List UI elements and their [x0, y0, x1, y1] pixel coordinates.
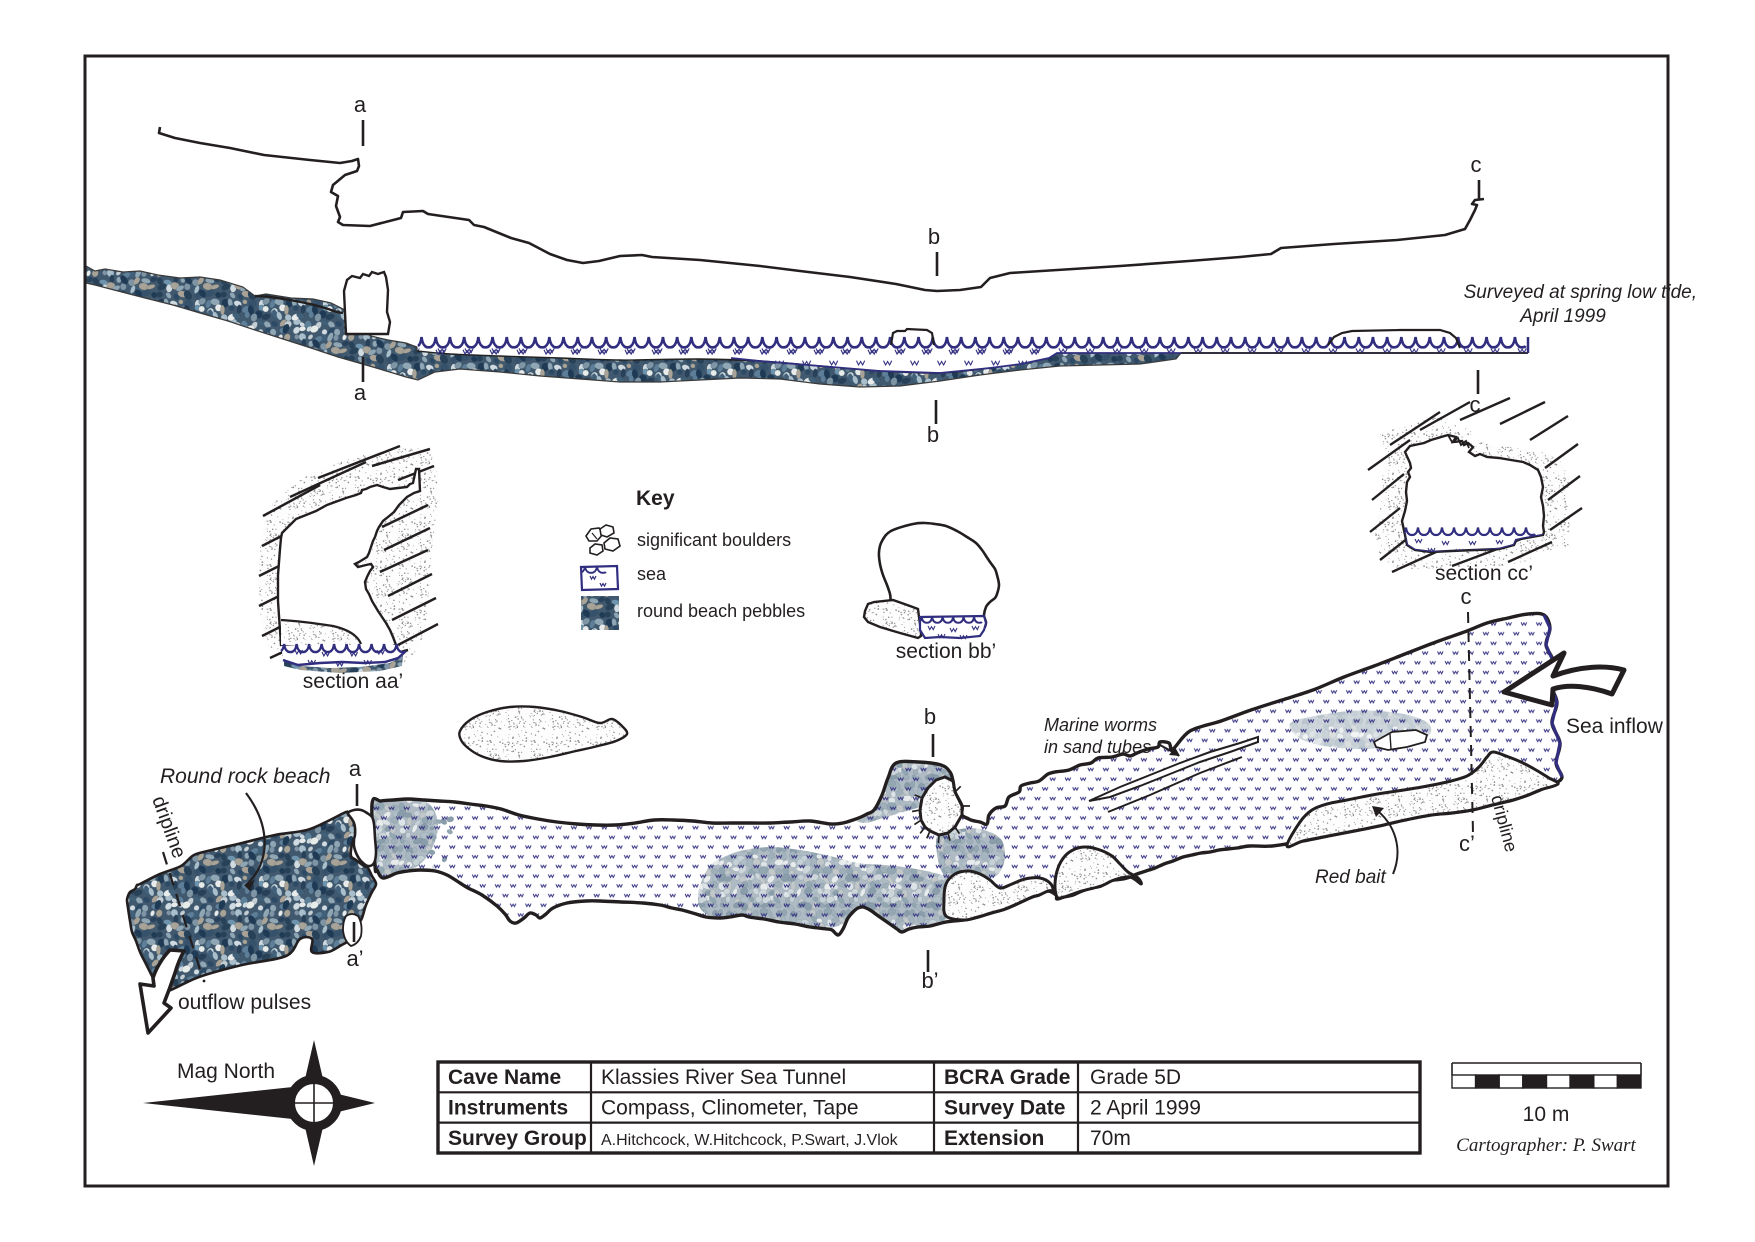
svg-text:dripline: dripline — [147, 793, 190, 861]
svg-text:Round rock beach: Round rock beach — [160, 765, 330, 788]
svg-text:Sea inflow: Sea inflow — [1566, 715, 1664, 738]
svg-text:Cave Name: Cave Name — [448, 1066, 561, 1089]
svg-text:Klassies River Sea Tunnel: Klassies River Sea Tunnel — [601, 1066, 846, 1089]
svg-text:Marine worms: Marine worms — [1044, 715, 1157, 735]
svg-text:Extension: Extension — [944, 1127, 1044, 1150]
svg-text:outflow pulses: outflow pulses — [178, 991, 311, 1014]
svg-text:Surveyed at spring low tide,: Surveyed at spring low tide, — [1464, 282, 1697, 303]
svg-text:Cartographer: P. Swart: Cartographer: P. Swart — [1456, 1135, 1636, 1156]
svg-text:section cc’: section cc’ — [1435, 562, 1533, 585]
svg-text:b: b — [927, 422, 939, 447]
svg-text:Key: Key — [636, 487, 675, 510]
svg-text:b’: b’ — [921, 968, 938, 993]
svg-text:70m: 70m — [1090, 1127, 1131, 1150]
svg-text:section aa’: section aa’ — [303, 670, 403, 693]
svg-text:Compass, Clinometer, Tape: Compass, Clinometer, Tape — [601, 1097, 859, 1120]
svg-text:Mag North: Mag North — [177, 1060, 275, 1083]
svg-text:BCRA Grade: BCRA Grade — [944, 1066, 1070, 1089]
svg-text:Red bait: Red bait — [1315, 867, 1386, 888]
svg-text:10 m: 10 m — [1523, 1103, 1570, 1126]
svg-text:c: c — [1461, 584, 1472, 609]
svg-text:Instruments: Instruments — [448, 1097, 568, 1120]
svg-text:round beach pebbles: round beach pebbles — [637, 601, 805, 621]
svg-text:b: b — [924, 704, 936, 729]
svg-text:sea: sea — [637, 564, 667, 584]
svg-text:Survey Group: Survey Group — [448, 1127, 587, 1150]
svg-text:April 1999: April 1999 — [1519, 306, 1606, 327]
svg-text:2 April 1999: 2 April 1999 — [1090, 1097, 1201, 1120]
svg-text:Survey Date: Survey Date — [944, 1097, 1065, 1120]
svg-text:significant boulders: significant boulders — [637, 530, 791, 550]
svg-text:a: a — [354, 92, 367, 117]
svg-text:dripline: dripline — [1487, 793, 1521, 854]
svg-text:c’: c’ — [1459, 831, 1475, 856]
svg-text:section bb’: section bb’ — [896, 640, 996, 663]
svg-text:Grade 5D: Grade 5D — [1090, 1066, 1181, 1089]
svg-text:a’: a’ — [346, 946, 363, 971]
svg-text:a: a — [349, 756, 362, 781]
svg-text:in sand tubes: in sand tubes — [1044, 737, 1151, 757]
svg-text:A.Hitchcock, W.Hitchcock, P.Sw: A.Hitchcock, W.Hitchcock, P.Swart, J.Vlo… — [601, 1132, 899, 1149]
svg-text:a: a — [354, 380, 367, 405]
svg-text:b: b — [928, 224, 940, 249]
svg-text:c: c — [1471, 152, 1482, 177]
